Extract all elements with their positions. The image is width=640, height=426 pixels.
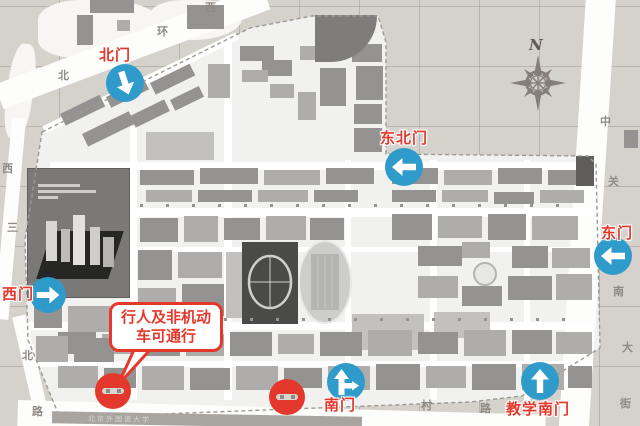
gate-marker-west-gate [30, 277, 66, 313]
gate-bar-tick [280, 395, 284, 399]
direction-arrow-icon [327, 363, 365, 401]
gate-marker-east-gate [594, 237, 632, 275]
gate-marker-teaching-south-gate [521, 362, 559, 400]
gate-label-north-gate: 北门 [99, 48, 131, 63]
notice-line-2: 车可通行 [116, 327, 216, 346]
gate-label-northeast-gate: 东北门 [380, 131, 428, 146]
campus-map: 北环西中关南大街西三北路村路 北京外国语大学 N 北门东北门东门西门南门教学南门… [0, 0, 640, 426]
direction-arrow-icon [30, 276, 66, 314]
no-entry-marker [269, 379, 305, 415]
direction-arrow-icon [106, 64, 144, 102]
direction-arrow-icon [521, 362, 559, 400]
gate-label-south-gate: 南门 [324, 398, 356, 413]
gate-marker-south-gate [327, 363, 365, 401]
notice-callout: 行人及非机动 车可通行 [109, 302, 223, 352]
direction-arrow-icon [594, 237, 632, 275]
notice-line-1: 行人及非机动 [116, 308, 216, 327]
gate-label-west-gate: 西门 [2, 287, 34, 302]
gate-bar [276, 394, 298, 400]
gate-marker-north-gate [106, 64, 144, 102]
gate-label-east-gate: 东门 [601, 226, 633, 241]
gate-label-teaching-south-gate: 教学南门 [506, 402, 570, 417]
gate-bar-tick [291, 395, 295, 399]
gate-markers-layer: 北门东北门东门西门南门教学南门 [0, 0, 640, 426]
gate-marker-northeast-gate [385, 148, 423, 186]
direction-arrow-icon [385, 148, 423, 186]
